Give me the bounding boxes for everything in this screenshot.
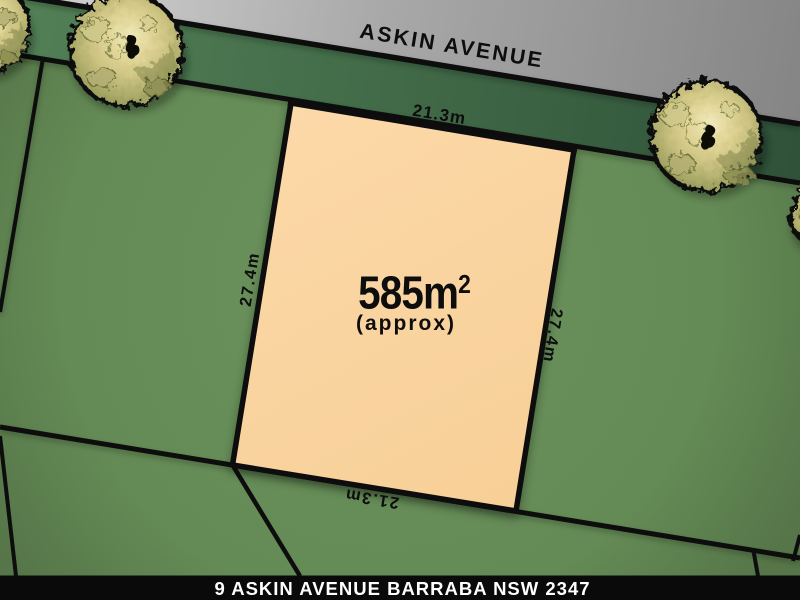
svg-text:(approx): (approx) — [356, 312, 456, 335]
svg-text:9 ASKIN AVENUE BARRABA NSW 234: 9 ASKIN AVENUE BARRABA NSW 2347 — [214, 578, 590, 599]
